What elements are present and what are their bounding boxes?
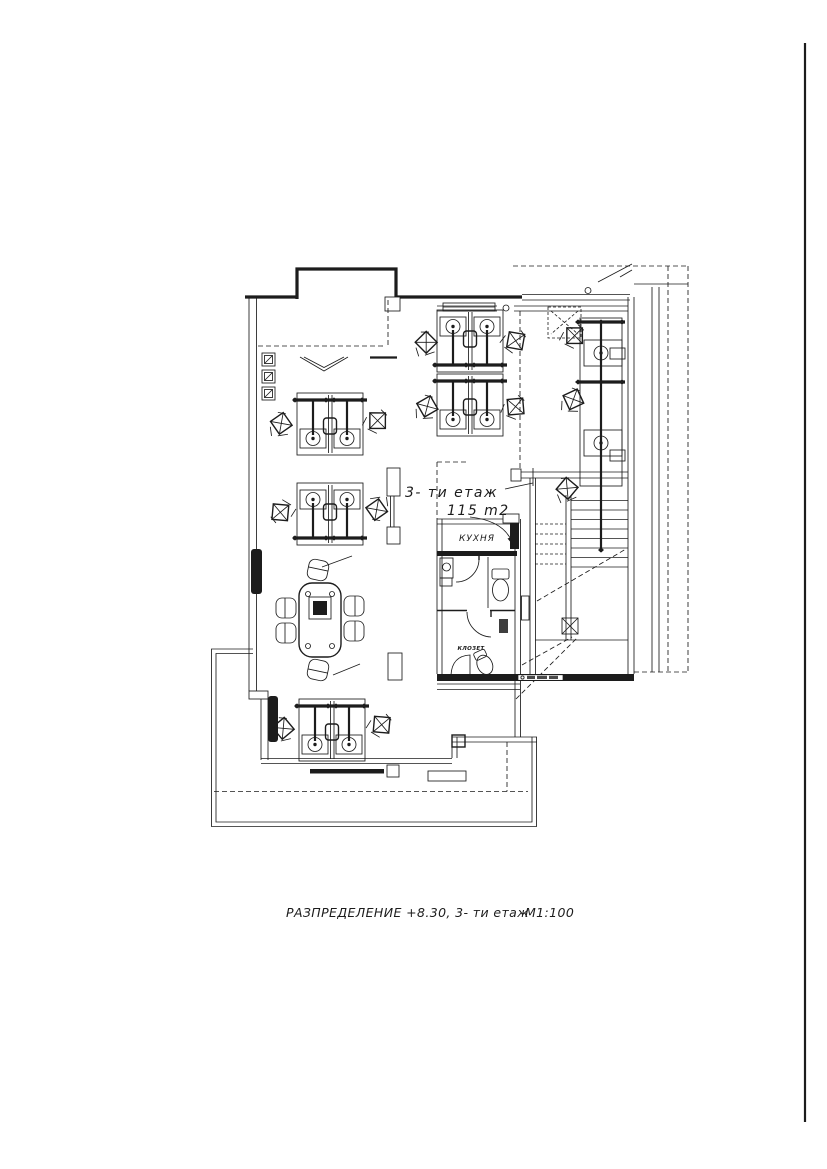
- workstation-cluster-bottom: [294, 699, 369, 761]
- kitchen-label: КУХНЯ: [459, 534, 495, 544]
- conference-chair: [344, 621, 364, 641]
- corner-sink: [451, 655, 470, 675]
- wc-label: КЛОЗЕТ: [458, 646, 486, 652]
- elevation-marker-strip: [518, 675, 563, 681]
- workstation-cluster-top-lower: [432, 374, 507, 436]
- conference-chair: [276, 598, 296, 618]
- office-chair: [409, 328, 441, 360]
- toilet: [492, 569, 509, 579]
- conference-chair: [306, 658, 330, 682]
- conference-area: [276, 556, 364, 682]
- floor-label: 3- ти етаж: [405, 485, 498, 501]
- area-label: 115 m2: [447, 503, 510, 519]
- building-walls: [245, 269, 634, 774]
- floor-plan-drawing: 3- ти етаж 115 m2 КУХНЯ КЛОЗЕТ РАЗПРЕДЕЛ…: [0, 0, 827, 1169]
- office-chair: [363, 493, 393, 523]
- office-chair: [265, 409, 295, 439]
- door-arc: [456, 559, 479, 582]
- toilet: [472, 648, 496, 677]
- office-chair: [361, 406, 389, 435]
- conference-chair: [344, 596, 364, 616]
- door-arc: [467, 612, 491, 637]
- plan-scale: М1:100: [525, 905, 574, 920]
- stair-treads: [535, 501, 628, 568]
- office-chair: [558, 386, 585, 414]
- wall-lockers: [262, 353, 275, 400]
- plan-title: РАЗПРЕДЕЛЕНИЕ +8.30, 3- ти етаж: [286, 905, 529, 920]
- office-chair: [365, 709, 395, 739]
- office-chair: [411, 393, 439, 422]
- office-chair: [500, 393, 527, 421]
- workstation-cluster-right: [575, 318, 625, 553]
- workstation-cluster-top-upper: [432, 310, 507, 372]
- workstation-cluster-left-b: [292, 483, 367, 545]
- office-chair: [558, 321, 586, 350]
- adjacent-structure: [598, 264, 688, 672]
- conference-chair: [276, 623, 296, 643]
- office-chair: [267, 497, 297, 527]
- entrance-chevron: [300, 357, 348, 371]
- conference-chair: [306, 558, 330, 582]
- drawing-sheet: 3- ти етаж 115 m2 КУХНЯ КЛОЗЕТ РАЗПРЕДЕЛ…: [0, 0, 827, 1169]
- workstation-cluster-left-a: [292, 393, 367, 455]
- bay-window: [297, 269, 396, 299]
